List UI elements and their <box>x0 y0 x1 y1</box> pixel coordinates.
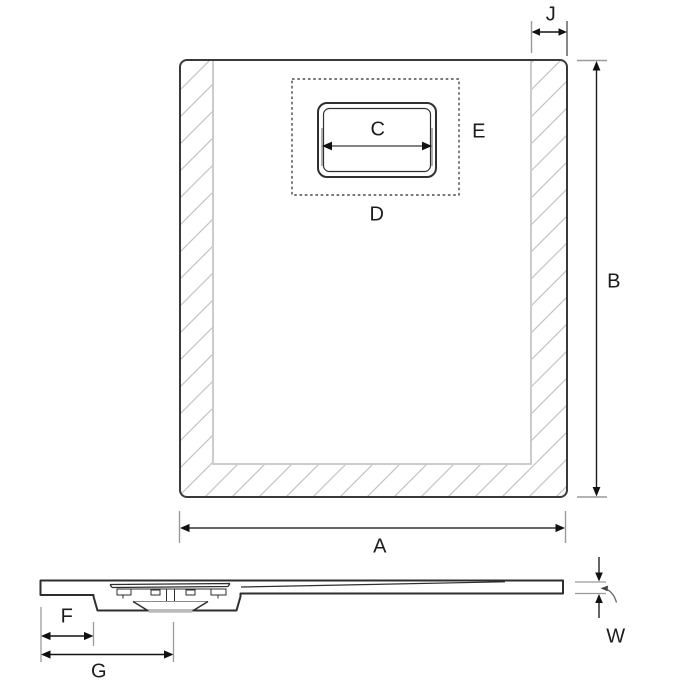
label-w: W <box>606 626 625 649</box>
tray-plan-view <box>180 21 608 543</box>
label-g: G <box>91 661 107 684</box>
label-d: D <box>370 204 385 227</box>
label-j: J <box>546 4 557 27</box>
label-f: F <box>61 606 74 629</box>
diagram-canvas <box>0 0 674 695</box>
dim-b <box>577 61 607 498</box>
tray-section-view <box>41 557 617 662</box>
label-c: C <box>371 119 386 142</box>
label-b: B <box>607 271 621 294</box>
shower-tray-dimension-diagram: J B C E D A F G W <box>0 0 674 695</box>
label-a: A <box>373 536 387 559</box>
label-e: E <box>472 121 486 144</box>
dim-w <box>575 557 617 618</box>
